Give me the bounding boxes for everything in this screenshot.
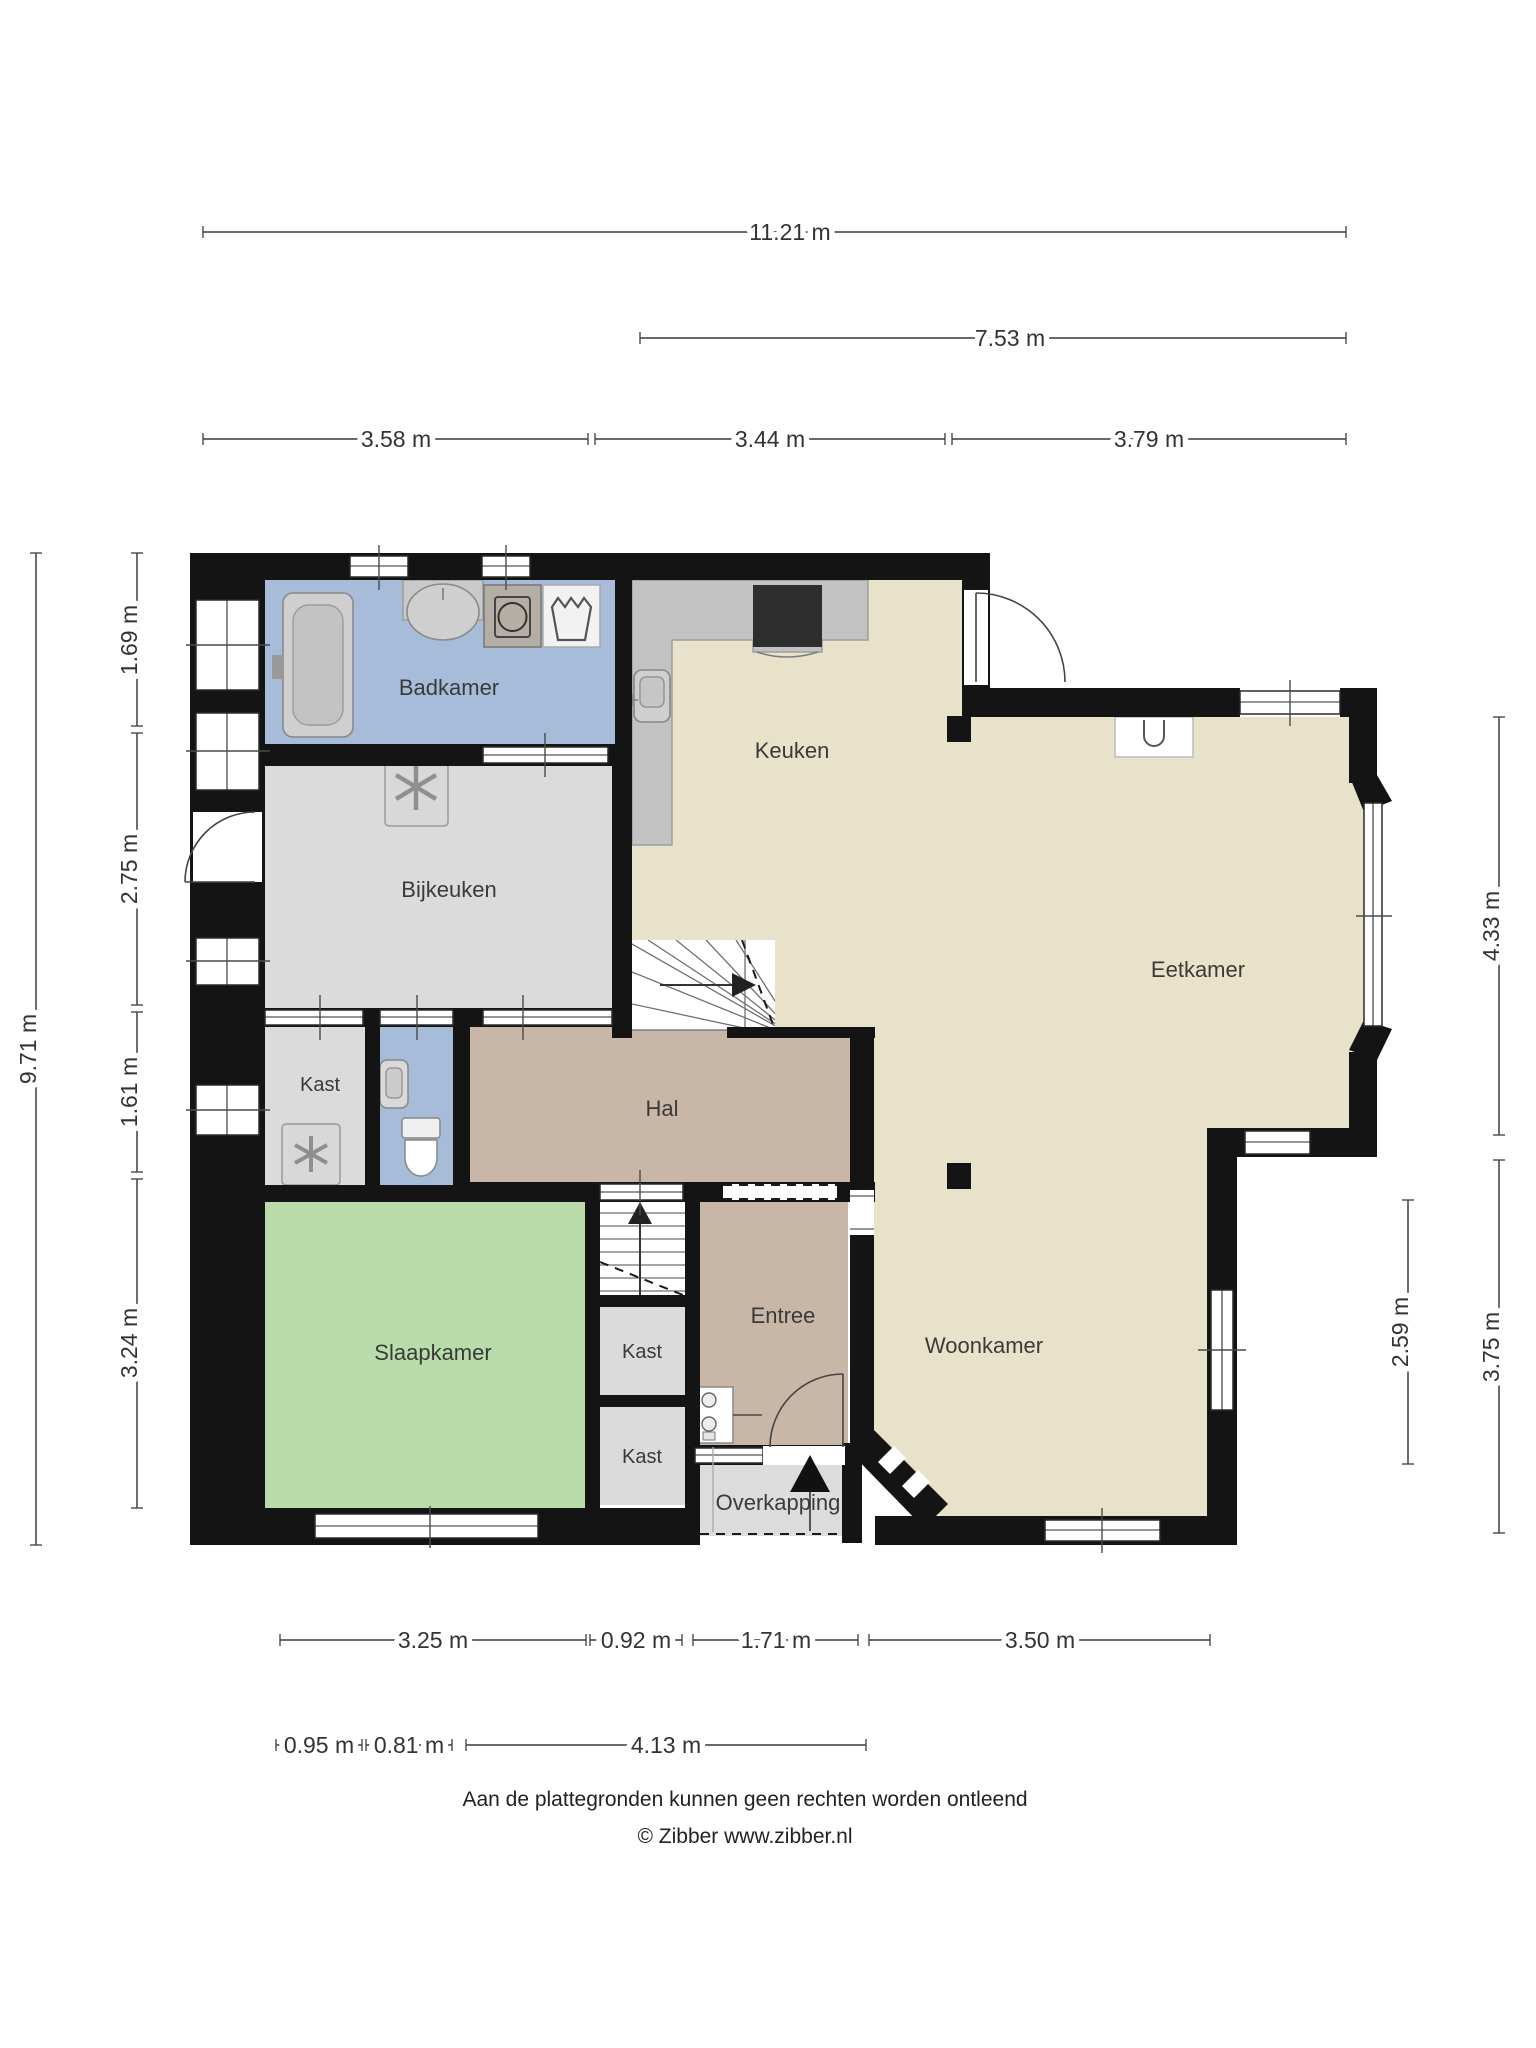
dim-label: 11.21 m — [749, 219, 830, 245]
dimension-right-inner: 2.59 m — [1387, 1200, 1414, 1464]
dim-label: 0.81 m — [374, 1732, 444, 1758]
freezer-snowflake-icon — [282, 1124, 340, 1185]
dim-label: 4.33 m — [1478, 891, 1504, 961]
dimension-top-right-part: 7.53 m — [640, 325, 1346, 351]
label-badkamer: Badkamer — [399, 675, 499, 700]
opening — [850, 1190, 874, 1235]
dim-label: 2.59 m — [1387, 1297, 1413, 1367]
window — [265, 1010, 363, 1025]
dim-label: 7.53 m — [975, 325, 1045, 351]
label-overkapping: Overkapping — [716, 1490, 841, 1515]
hand-basin-icon — [380, 1060, 408, 1108]
dim-label: 3.25 m — [398, 1627, 468, 1653]
dimension-top-segments: 3.58 m 3.44 m 3.79 m — [203, 426, 1346, 452]
laundry-basket-icon — [543, 585, 600, 647]
footer: Aan de plattegronden kunnen geen rechten… — [462, 1788, 1027, 1848]
dim-label: 3.75 m — [1478, 1312, 1504, 1382]
dim-label: 0.95 m — [284, 1732, 354, 1758]
label-kast-onder: Kast — [622, 1446, 662, 1468]
dimension-left-segments: 1.69 m 2.75 m 1.61 m 3.24 m — [116, 553, 143, 1508]
dim-label: 3.50 m — [1005, 1627, 1075, 1653]
window — [1245, 1131, 1310, 1154]
window — [315, 1514, 538, 1538]
footer-copyright: © Zibber www.zibber.nl — [637, 1825, 852, 1848]
label-slaapkamer: Slaapkamer — [374, 1340, 491, 1365]
toilet-icon — [402, 1118, 440, 1176]
dim-label: 1.61 m — [116, 1057, 142, 1127]
floorplan-canvas: Badkamer Keuken Bijkeuken Eetkamer Kast … — [0, 0, 1536, 2048]
window — [483, 1010, 612, 1025]
label-kast-bij-toilet: Kast — [300, 1074, 340, 1096]
label-keuken: Keuken — [755, 738, 830, 763]
floorplan-page: Badkamer Keuken Bijkeuken Eetkamer Kast … — [0, 0, 1536, 2048]
window — [695, 1448, 763, 1463]
door-opening — [193, 812, 262, 882]
bathtub-icon — [272, 593, 353, 737]
column — [947, 1163, 971, 1189]
dim-label: 1.69 m — [116, 605, 142, 675]
dim-label: 2.75 m — [116, 834, 142, 904]
column — [947, 716, 971, 742]
label-hal: Hal — [645, 1096, 678, 1121]
cooktop-icon — [753, 585, 822, 647]
dim-label: 1.71 m — [741, 1627, 811, 1653]
dimension-bottom-row1: 3.25 m 0.92 m 1.71 m 3.50 m — [280, 1627, 1210, 1653]
washing-machine-icon — [484, 585, 541, 647]
label-eetkamer: Eetkamer — [1151, 957, 1245, 982]
dim-label: 3.58 m — [361, 426, 431, 452]
dim-label: 3.24 m — [116, 1308, 142, 1378]
dim-label: 4.13 m — [631, 1732, 701, 1758]
dim-label: 3.79 m — [1114, 426, 1184, 452]
label-woonkamer: Woonkamer — [925, 1333, 1043, 1358]
fireplace-icon — [1115, 717, 1193, 757]
dim-label: 3.44 m — [735, 426, 805, 452]
opening-dashed — [723, 1184, 837, 1200]
label-bijkeuken: Bijkeuken — [401, 877, 496, 902]
window — [1364, 803, 1382, 1026]
footer-disclaimer: Aan de plattegronden kunnen geen rechten… — [462, 1788, 1027, 1811]
dim-label: 9.71 m — [15, 1014, 41, 1084]
label-kast-boven: Kast — [622, 1341, 662, 1363]
dimension-bottom-row2: 0.95 m 0.81 m 4.13 m — [276, 1732, 866, 1758]
door-opening — [763, 1446, 845, 1465]
label-entree: Entree — [751, 1303, 816, 1328]
dimension-top-total: 11.21 m — [203, 219, 1346, 245]
opening — [600, 1184, 683, 1200]
dim-label: 0.92 m — [601, 1627, 671, 1653]
dimension-left-total: 9.71 m — [15, 553, 42, 1545]
dimension-right-segments: 4.33 m 3.75 m — [1478, 717, 1505, 1533]
